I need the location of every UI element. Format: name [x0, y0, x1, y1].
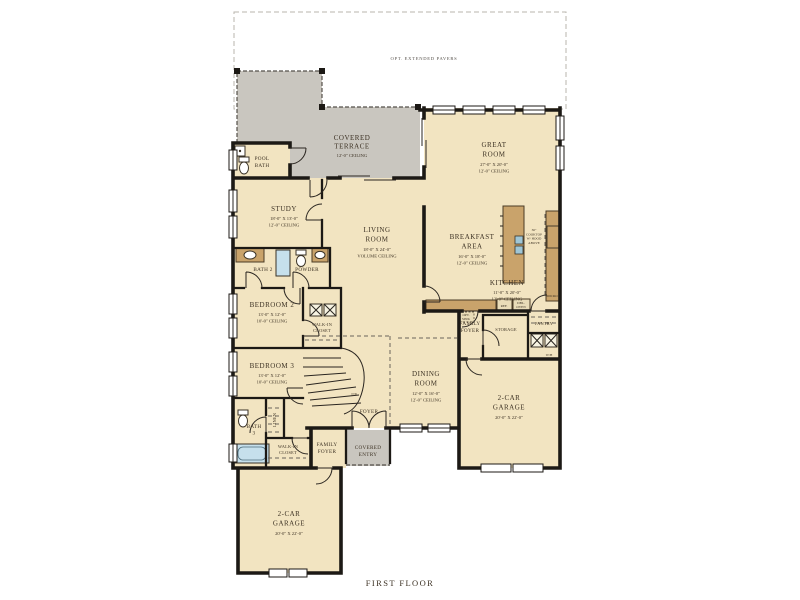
- dining-room-dims: 12'-0" X 16'-0"12'-0" CEILING: [411, 391, 442, 403]
- garage-door-panel: [289, 569, 307, 577]
- kitchen-island: [503, 206, 524, 283]
- water-heater-label: W/H: [546, 353, 553, 357]
- shower-drain: [239, 150, 241, 152]
- stair-up-label: UP: [351, 392, 357, 397]
- garage-bottom-label: 2-CARGARAGE: [273, 510, 305, 528]
- double-oven-label: DBL.OVEN: [516, 301, 526, 309]
- kitchen-counter: [546, 211, 560, 301]
- dining-room-label: DININGROOM: [412, 370, 440, 388]
- kitchen-dims: 11'-0" X 20'-0"12'-0" CEILING: [492, 290, 523, 302]
- garage-door-panel: [513, 464, 543, 472]
- bedroom2-label: BEDROOM 2: [250, 301, 295, 309]
- opt-sink-label: OPT.SINK: [462, 313, 470, 321]
- plan-footer-title: FIRST FLOOR: [366, 578, 434, 588]
- toilet-tank-icon: [296, 250, 306, 255]
- breakfast-area-dims: 16'-0" X 18'-0"12'-0" CEILING: [457, 254, 488, 266]
- toilet-tank-icon: [238, 410, 248, 415]
- island-sink-icon: [515, 246, 523, 254]
- powder-label: POWDER: [295, 267, 319, 273]
- linen-label: LINEN: [272, 412, 277, 427]
- walk-in-closet3-label: WALK-INCLOSET: [278, 444, 299, 455]
- garage-right-dims: 20'-0" X 22'-0": [495, 415, 523, 420]
- toilet-icon: [240, 162, 249, 174]
- terrace-post: [319, 68, 325, 74]
- sink-icon: [315, 251, 325, 258]
- micro-label: MICRO: [546, 294, 558, 298]
- island-sink-icon: [515, 236, 523, 244]
- garage-right-label: 2-CARGARAGE: [493, 394, 525, 412]
- sink-icon: [244, 251, 256, 259]
- garage-door-panel: [481, 464, 511, 472]
- pantry-label: PANTRY: [535, 321, 554, 326]
- garage-bottom-dims: 20'-0" X 22'-0": [275, 531, 303, 536]
- study-dims: 18'-0" X 13'-0"12'-0" CEILING: [269, 216, 300, 228]
- bedroom2-dims: 13'-0" X 12'-0"10'-0" CEILING: [257, 312, 288, 324]
- covered-terrace-ceiling: 12'-0" CEILING: [337, 153, 368, 158]
- walk-in-closet2-label: WALK-INCLOSET: [312, 322, 333, 333]
- toilet-tank-icon: [239, 157, 249, 162]
- living-room-label: LIVINGROOM: [363, 226, 390, 244]
- covered-terrace-label: COVEREDTERRACE: [334, 134, 371, 151]
- pool-bath-label: POOLBATH: [255, 156, 270, 169]
- bedroom3-label: BEDROOM 3: [250, 362, 295, 370]
- refrigerator-label: REF.: [501, 304, 508, 308]
- kitchen-label: KITCHEN: [490, 279, 524, 287]
- great-room-label: GREATROOM: [481, 141, 506, 159]
- toilet-icon: [297, 256, 306, 267]
- bath2-shower: [276, 250, 290, 276]
- great-room-dims: 27'-0" X 20'-0"12'-0" CEILING: [479, 162, 510, 174]
- bath2-label: BATH 2: [253, 267, 272, 273]
- study-label: STUDY: [271, 205, 297, 213]
- first-floor-plan: OPT. EXTENDED PAVERS: [0, 0, 800, 600]
- room-garage-right: [459, 359, 561, 468]
- garage-door-panel: [269, 569, 287, 577]
- terrace-post: [234, 68, 240, 74]
- pavers-label: OPT. EXTENDED PAVERS: [391, 56, 458, 61]
- storage-label: STORAGE: [495, 327, 517, 332]
- terrace-post: [319, 104, 325, 110]
- family-foyer-b-label: FAMILYFOYER: [460, 321, 481, 334]
- foyer-label: FOYER: [360, 409, 379, 415]
- family-foyer-a-label: FAMILYFOYER: [317, 442, 338, 455]
- bedroom3-dims: 13'-0" X 12'-0"10'-0" CEILING: [257, 373, 288, 385]
